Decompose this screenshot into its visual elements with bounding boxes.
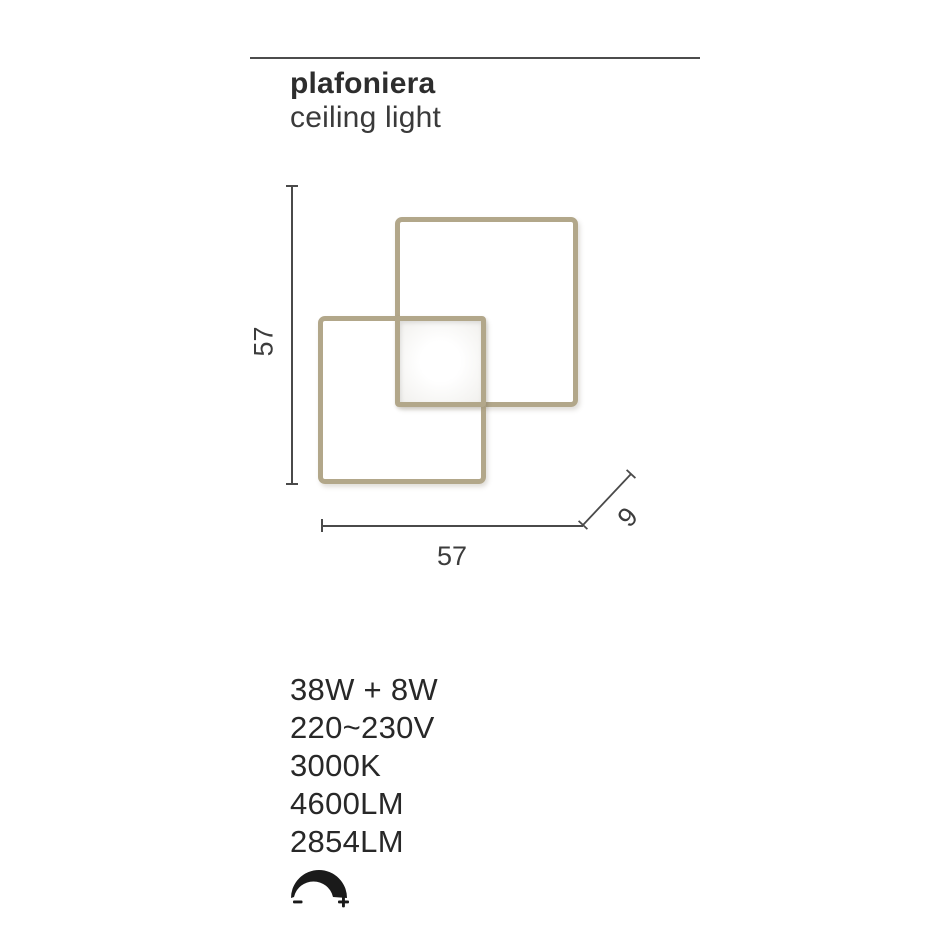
- product-spec-page: plafoniera ceiling light 57 57 9 38W + 8…: [0, 0, 950, 950]
- spec-list: 38W + 8W 220~230V 3000K 4600LM 2854LM: [290, 671, 438, 861]
- dimmer-minus-icon: [293, 901, 303, 904]
- page-title: plafoniera: [290, 67, 435, 101]
- page-subtitle: ceiling light: [290, 101, 441, 135]
- width-dimension-line: [322, 525, 583, 527]
- dimmable-arc-icon: [288, 860, 352, 910]
- center-light-panel-icon: [395, 316, 486, 407]
- height-dimension-label: 57: [249, 322, 280, 362]
- header-divider-line: [250, 57, 700, 59]
- spec-voltage: 220~230V: [290, 709, 438, 747]
- height-dimension-tick-top: [286, 185, 298, 187]
- width-dimension-tick-left: [321, 519, 323, 532]
- spec-lumen-primary: 4600LM: [290, 785, 438, 823]
- height-dimension-line: [291, 186, 293, 484]
- spec-lumen-secondary: 2854LM: [290, 823, 438, 861]
- spec-color-temperature: 3000K: [290, 747, 438, 785]
- spec-wattage: 38W + 8W: [290, 671, 438, 709]
- width-dimension-label: 57: [430, 541, 474, 572]
- height-dimension-tick-bottom: [286, 483, 298, 485]
